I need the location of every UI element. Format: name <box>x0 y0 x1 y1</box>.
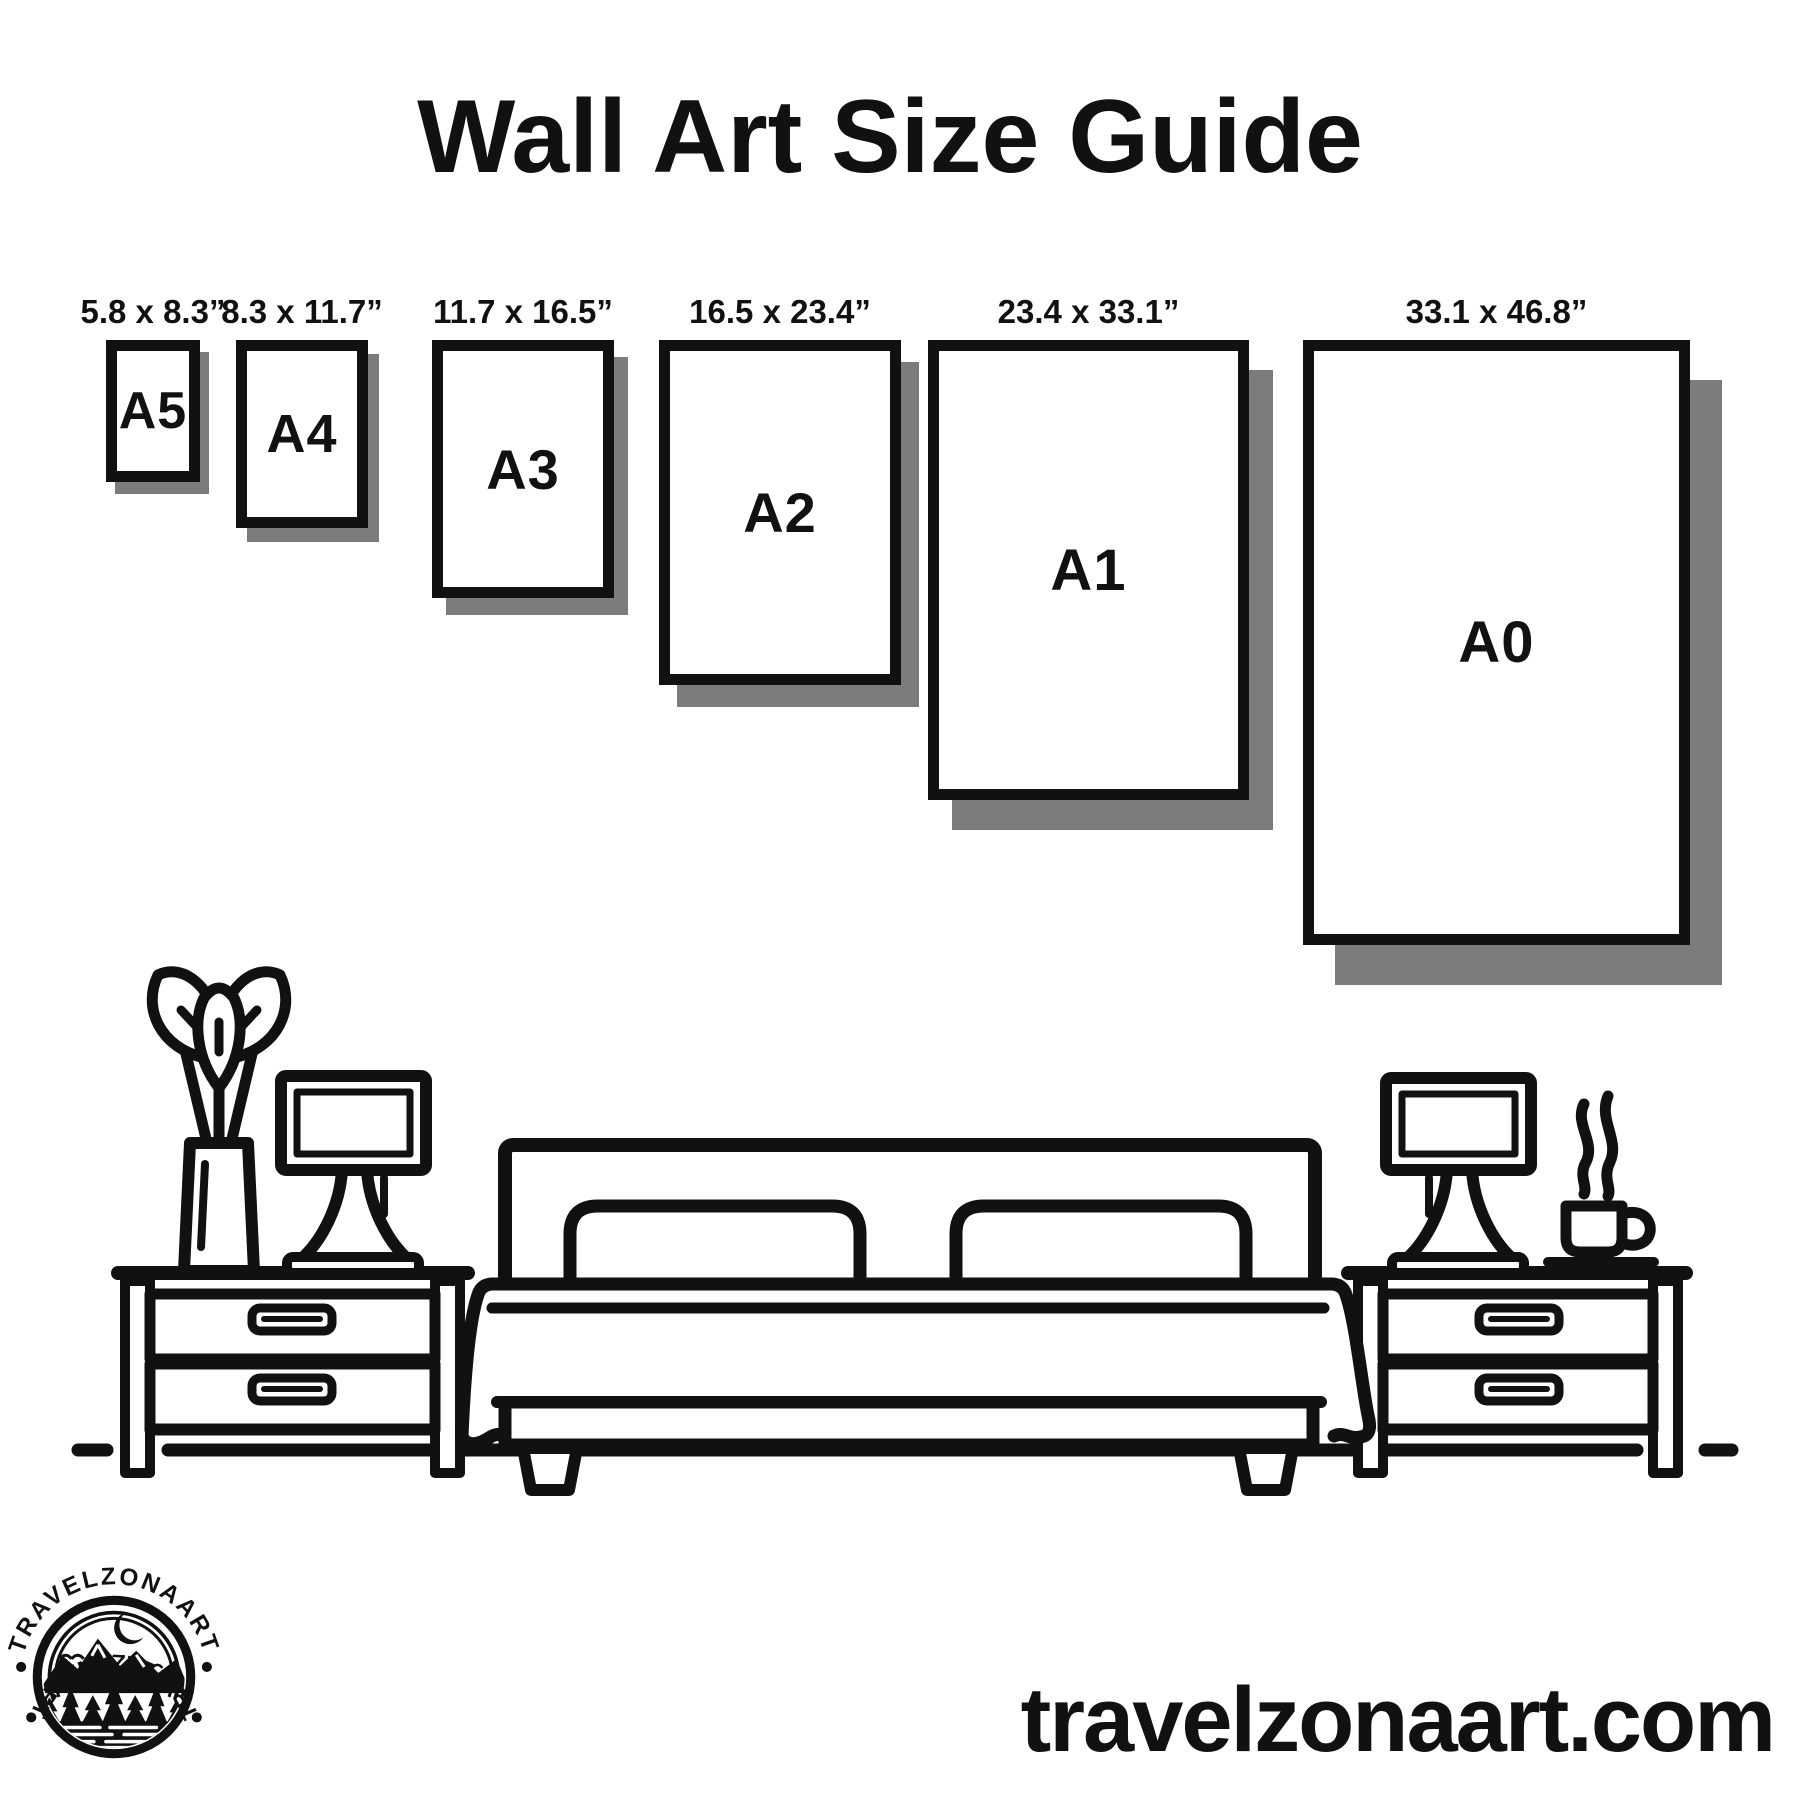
table-lamp-left-icon <box>281 1076 426 1273</box>
dimension-label-a0: 33.1 x 46.8” <box>1317 293 1677 331</box>
nightstand-left <box>118 1273 468 1473</box>
vase <box>184 1143 254 1271</box>
steam-icon <box>1605 1096 1612 1196</box>
double-bed <box>462 1145 1370 1490</box>
size-frame-a4: A4 <box>236 340 368 528</box>
dimension-label-a2: 16.5 x 23.4” <box>600 293 960 331</box>
pillow <box>956 1206 1246 1284</box>
bed-base <box>505 1402 1313 1445</box>
steam-icon <box>1581 1104 1588 1194</box>
dimension-label-a1: 23.4 x 33.1” <box>909 293 1269 331</box>
size-guide-poster: Wall Art Size Guide A55.8 x 8.3”A48.3 x … <box>0 0 1800 1800</box>
frame-size-label: A1 <box>1050 537 1126 604</box>
potted-plant-icon <box>152 972 285 1271</box>
frame-size-label: A5 <box>119 381 187 441</box>
size-frame-a1: A1 <box>928 340 1249 800</box>
bed-leg <box>1239 1448 1293 1490</box>
size-frame-a5: A5 <box>106 340 200 482</box>
brand-logo: TRAVELZONAART TRAVELZONAART <box>7 1566 221 1788</box>
size-frame-a3: A3 <box>432 340 614 598</box>
size-frame-a2: A2 <box>659 340 901 685</box>
bedroom-scene <box>0 850 1800 1530</box>
pillow <box>570 1206 860 1284</box>
nightstand-right <box>1348 1273 1686 1473</box>
website-url: travelzonaart.com <box>1021 1668 1774 1773</box>
page-title: Wall Art Size Guide <box>0 78 1780 197</box>
frame-size-label: A0 <box>1458 609 1534 676</box>
bed-leg <box>523 1448 577 1490</box>
table-lamp-right-icon <box>1386 1078 1531 1273</box>
frame-size-label: A3 <box>486 437 560 502</box>
frame-size-label: A2 <box>743 480 817 545</box>
frame-size-label: A4 <box>266 403 337 465</box>
coffee-cup-icon <box>1548 1096 1654 1262</box>
